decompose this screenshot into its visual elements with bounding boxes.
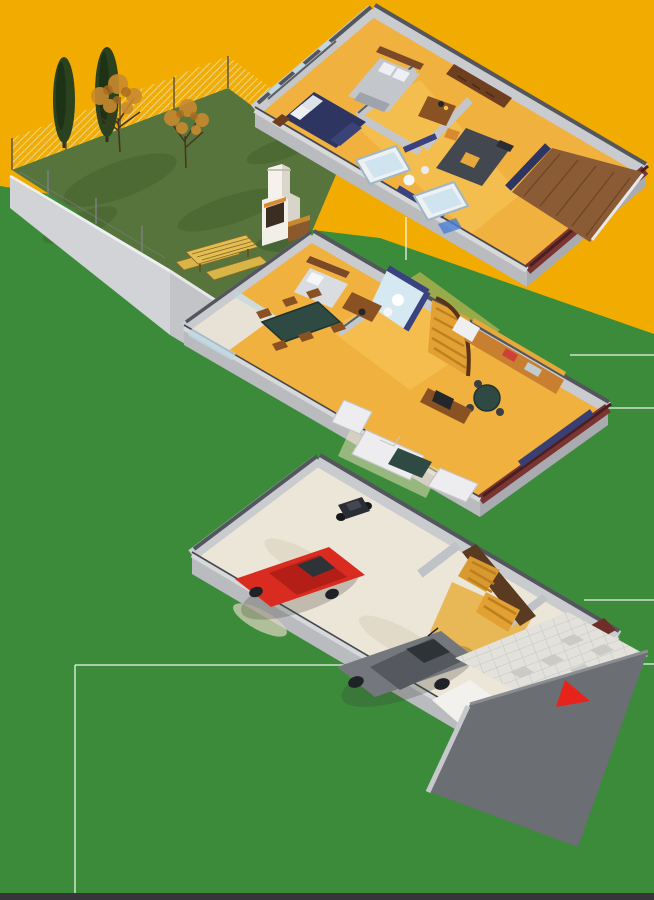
toilet (384, 308, 393, 317)
toilet (404, 175, 415, 186)
footer-strip (0, 893, 654, 900)
washbasin (392, 294, 404, 306)
round-table (474, 385, 500, 411)
desk-lamp (444, 106, 448, 110)
desk-chair (359, 309, 366, 316)
sink (421, 166, 429, 174)
brochure-page (0, 0, 654, 900)
